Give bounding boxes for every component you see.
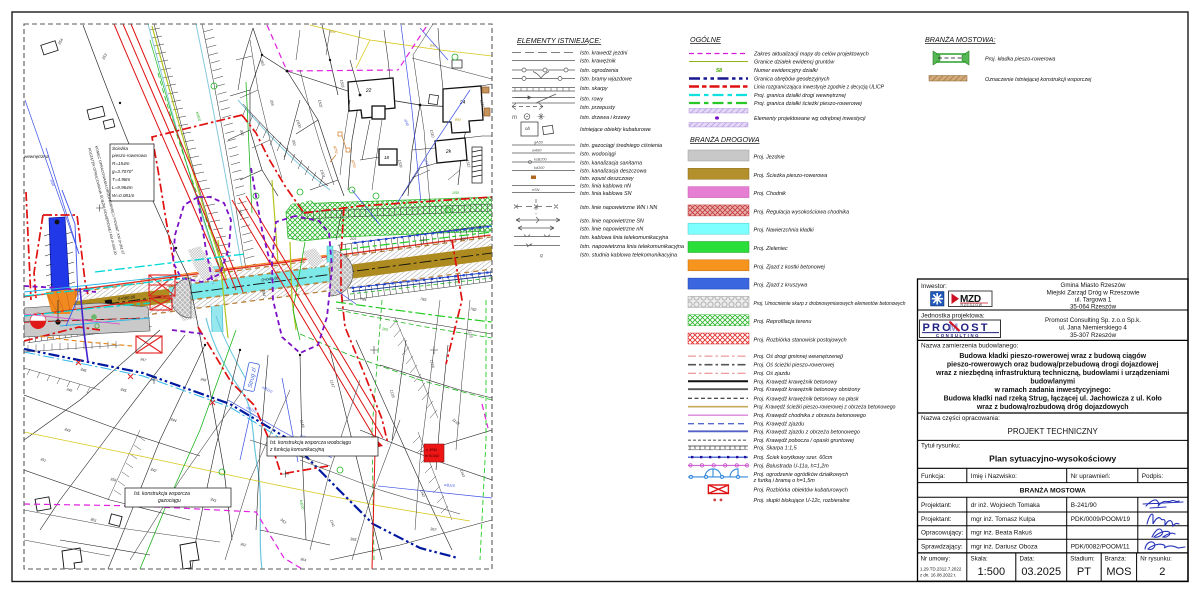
svg-text:PDK/0009/POOM/19: PDK/0009/POOM/19 [1071,516,1131,523]
svg-text:Imię i Nazwisko:: Imię i Nazwisko: [971,473,1017,480]
svg-text:Proj. granica działki ścieżki: Proj. granica działki ścieżki pieszo-row… [754,101,863,107]
svg-text:Sprawdzający:: Sprawdzający: [921,543,963,550]
svg-text:B-241/90: B-241/90 [1071,502,1097,509]
svg-text:Istn. drzewa i krzewy: Istn. drzewa i krzewy [580,115,630,121]
svg-text:Nr uprawnień:: Nr uprawnień: [1071,473,1111,480]
svg-text:Nazwa zamierzenia budowlanego:: Nazwa zamierzenia budowlanego: [921,343,1019,350]
svg-text:Istn. ogrodzenia: Istn. ogrodzenia [580,68,618,74]
svg-text:Jednostka projektowa:: Jednostka projektowa: [921,313,985,320]
svg-text:Istn. studnia kablowa telekomu: Istn. studnia kablowa telekomunikacyjna [580,253,677,259]
svg-text:Proj. Oś ścieżki pieszo-rowero: Proj. Oś ścieżki pieszo-rowerowej [754,363,835,369]
svg-text:ELEMENTY ISTNIEJĄCE:: ELEMENTY ISTNIEJĄCE: [517,36,601,45]
svg-text:g=3.7070°: g=3.7070° [112,169,133,174]
svg-text:Proj. Krawędź pobocza / opaski: Proj. Krawędź pobocza / opaski gruntowej [754,438,855,444]
svg-text:W=0.081m: W=0.081m [112,193,135,198]
svg-text:BRANŻA DROGOWA: BRANŻA DROGOWA [690,135,760,144]
svg-text:pieszo-rowerowych oraz budową/: pieszo-rowerowych oraz budową/przebudową… [947,362,1159,369]
svg-text:Proj. Umocnienie skarp z drobn: Proj. Umocnienie skarp z drobnowymiarowy… [754,301,906,307]
svg-text:Proj. Ściek korytkowy szer. 60: Proj. Ściek korytkowy szer. 60cm [754,454,833,461]
svg-text:Proj. Krawędź ścieżki pieszo-r: Proj. Krawędź ścieżki pieszo-rowerowej z… [754,405,896,411]
svg-text:Stadium:: Stadium: [1070,556,1095,563]
svg-text:03.2025: 03.2025 [1021,566,1061,578]
svg-text:gazociągu: gazociągu [158,498,181,504]
svg-text:Nr umowy:: Nr umowy: [921,556,951,563]
svg-text:OGÓLNE: OGÓLNE [690,35,721,44]
svg-text:nr B-042: nr B-042 [425,454,439,458]
svg-text:T=4.98m: T=4.98m [112,177,130,182]
svg-text:pieszo-rowerowa: pieszo-rowerowa [111,153,147,158]
svg-text:dr inż. Wojciech Tomaka: dr inż. Wojciech Tomaka [971,502,1040,509]
svg-text:Linia rozgraniczająca inwestyc: Linia rozgraniczająca inwestycje zgodnie… [754,85,884,91]
svg-text:BRANŻA MOSTOWA: BRANŻA MOSTOWA [1020,487,1086,495]
svg-text:Nazwa części opracowania:: Nazwa części opracowania: [921,415,1000,422]
svg-text:Budowa kładki nad rzeką Strug,: Budowa kładki nad rzeką Strug, łączącej … [944,396,1162,403]
svg-text:Proj. Ścieżka pieszo-rowerowa: Proj. Ścieżka pieszo-rowerowa [754,172,828,179]
svg-text:Proj. Chodnik: Proj. Chodnik [754,191,787,197]
svg-text:Istn. wodociągi: Istn. wodociągi [580,152,616,158]
svg-text:Projektant:: Projektant: [921,516,952,523]
svg-text:mgr inż. Dariusz Oboza: mgr inż. Dariusz Oboza [971,543,1038,550]
svg-text:Branża:: Branża: [1105,556,1127,563]
svg-text:Istn. linie napowietrzne WN i: Istn. linie napowietrzne WN i NN [580,205,657,211]
svg-text:Podpis:: Podpis: [1142,473,1164,480]
svg-text:Granice działek ewidencj grunt: Granice działek ewidencj gruntów [754,60,835,66]
svg-text:Istniejące obiekty kubaturowe: Istniejące obiekty kubaturowe [580,127,651,133]
svg-text:Zakres aktualizacji mapy do ce: Zakres aktualizacji mapy do celów projek… [753,52,869,58]
svg-text:Proj. Krawędź chodnika z obrze: Proj. Krawędź chodnika z obrzeża betonow… [754,413,866,419]
svg-text:Proj. Zjazd z kruszywa: Proj. Zjazd z kruszywa [754,283,808,289]
svg-text:Proj. Regulacja wysokościowa c: Proj. Regulacja wysokościowa chodnika [754,209,850,215]
svg-text:2k: 2k [445,149,452,155]
svg-text:q: q [540,253,543,259]
svg-text:mgr inż. Beata Rakuś: mgr inż. Beata Rakuś [971,530,1032,537]
svg-text:Proj. słupki blokujące U-12c,: Proj. słupki blokujące U-12c, rozbieraln… [754,498,850,504]
svg-text:w ramach zadania inwestycyjneg: w ramach zadania inwestycyjnego: [994,387,1111,394]
svg-text:18: 18 [384,155,390,160]
svg-text:Istn. wpust deszczowy: Istn. wpust deszczowy [580,176,634,182]
svg-text:Plan sytuacyjno-wysokościowy: Plan sytuacyjno-wysokościowy [989,454,1116,464]
svg-text:ul. Jana Niemierskiego 4: ul. Jana Niemierskiego 4 [1059,325,1127,332]
svg-text:gaz: gaz [430,43,436,48]
svg-text:PROJEKT TECHNICZNY: PROJEKT TECHNICZNY [1008,427,1099,436]
svg-text:Proj. Skarpa 1:1,5: Proj. Skarpa 1:1,5 [754,446,798,452]
svg-text:budowlanymi: budowlanymi [1030,379,1075,386]
svg-text:Proj. Rozbiórka stanowisk post: Proj. Rozbiórka stanowisk postojowych [754,338,847,344]
svg-text:1/50: 1/50 [452,191,459,195]
svg-text:Proj. Zjazd z kostki betonowej: Proj. Zjazd z kostki betonowej [754,264,826,270]
svg-text:Proj. Balustrada U-11a, h=1,2m: Proj. Balustrada U-11a, h=1,2m [754,463,830,469]
svg-text:Funkcja:: Funkcja: [921,473,945,480]
svg-text:Proj. granica działki drogi we: Proj. granica działki drogi wewnętrznej [754,93,846,99]
svg-text:Promost Consulting Sp. z.o.o S: Promost Consulting Sp. z.o.o Sp.k. [1045,317,1141,324]
svg-text:Proj. Krawędź krawężnik betono: Proj. Krawędź krawężnik betonowy na płas… [754,396,859,402]
svg-text:35-307 Rzeszów: 35-307 Rzeszów [1070,332,1117,339]
svg-text:Inwestor:: Inwestor: [921,283,947,290]
svg-text:Proj. Zieleniec: Proj. Zieleniec [754,246,788,252]
svg-text:Proj. Krawędź krawężnik betono: Proj. Krawędź krawężnik betonowy [754,379,838,385]
svg-text:Elementy projektowane wg odręb: Elementy projektowane wg odrębnej inwest… [754,116,866,122]
svg-text:Ist. konstrukcja wsporcza: Ist. konstrukcja wsporcza [134,491,190,497]
svg-text:ul. Targowa 1: ul. Targowa 1 [1075,297,1112,304]
svg-text:35-064 Rzeszów: 35-064 Rzeszów [1070,304,1117,311]
svg-text:z dn. 16.08.2022 r.: z dn. 16.08.2022 r. [920,573,956,578]
svg-text:mgr inż. Tomasz Kulpa: mgr inż. Tomasz Kulpa [971,516,1036,523]
svg-text:Istn. kablowa linia telekomuni: Istn. kablowa linia telekomunikacyjna [580,235,668,241]
svg-text:eSN: eSN [532,188,540,192]
svg-text:ksB200: ksB200 [534,158,548,162]
svg-text:Proj. Nawierzchnia kładki: Proj. Nawierzchnia kładki [754,228,815,234]
svg-text:Istn. napowietrzna linia telek: Istn. napowietrzna linia telekomunikacyj… [580,244,684,250]
svg-text:1.29.TD.2312.7.2022: 1.29.TD.2312.7.2022 [920,567,962,572]
svg-text:R=154m: R=154m [112,161,130,166]
svg-text:MOS: MOS [1106,566,1131,578]
svg-text:Skala:: Skala: [971,556,988,563]
svg-text:z funkcją komunikacyjną: z funkcją komunikacyjną [269,447,324,453]
svg-text:Istn. linie napowietrzne nN: Istn. linie napowietrzne nN [580,227,643,233]
svg-text:wraz z budową/rozbudową dróg d: wraz z budową/rozbudową dróg dojazdowych [976,404,1129,411]
svg-text:Istn. linie napowietrzne SN: Istn. linie napowietrzne SN [580,219,644,225]
svg-text:Numer ewidencyjny działki: Numer ewidencyjny działki [754,68,818,74]
svg-text:Gmina Miasto Rzeszów: Gmina Miasto Rzeszów [1061,282,1127,289]
svg-text:Istn. rowy: Istn. rowy [580,97,603,103]
svg-text:22: 22 [365,88,372,94]
svg-text:Oznaczenie Istniejącej konstru: Oznaczenie Istniejącej konstrukcji wspor… [985,77,1092,83]
svg-text:wewnętrzna: wewnętrzna [24,154,49,159]
svg-text:Ścieżka: Ścieżka [112,145,129,151]
svg-text:z JSN: z JSN [426,447,437,452]
svg-text:gA50: gA50 [534,141,544,145]
svg-text:Granica obrębów geodezyjnych: Granica obrębów geodezyjnych [754,77,830,83]
svg-text:Istn. kanalizacja deszczowa: Istn. kanalizacja deszczowa [580,169,647,175]
svg-text:Tytuł rysunku:: Tytuł rysunku: [921,443,961,450]
svg-text:Proj. Reprofilacja terenu: Proj. Reprofilacja terenu [754,319,812,325]
svg-text:wraz z niezbędną infrastruktur: wraz z niezbędną infrastrukturą technicz… [935,370,1169,377]
svg-text:PT: PT [1077,566,1091,578]
svg-text:Budowa kładki pieszo-rowerowej: Budowa kładki pieszo-rowerowej wraz z bu… [959,353,1146,360]
svg-text:Proj. Jezdnie: Proj. Jezdnie [754,155,785,161]
svg-text:Miejski Zarząd Dróg w Rzeszowi: Miejski Zarząd Dróg w Rzeszowie [1047,289,1140,296]
svg-text:Opracowujący:: Opracowujący: [921,530,963,537]
svg-text:z furtką i bramą o h=1,5m: z furtką i bramą o h=1,5m [753,478,816,484]
svg-text:RZESZÓW: RZESZÓW [961,302,983,307]
svg-text:ob: ob [525,126,531,131]
svg-text:Data:: Data: [1020,556,1035,563]
svg-text:Istn. linia kablowa SN: Istn. linia kablowa SN [580,191,632,197]
svg-text:Istn. bramy wjazdowe: Istn. bramy wjazdowe [580,77,632,83]
svg-text:Istn. gazociągi średniego ciśn: Istn. gazociągi średniego ciśnienia [580,143,662,149]
svg-text:Istn. krawężnik: Istn. krawężnik [580,59,616,65]
svg-text:Proj. Krawędź krawężnik betono: Proj. Krawędź krawężnik betonowy obniżon… [754,387,861,393]
svg-text:L=9.964m: L=9.964m [112,185,133,190]
svg-text:2: 2 [1159,566,1165,578]
svg-text:Proj. Krawędź zjazdu z obrzeża: Proj. Krawędź zjazdu z obrzeża betonoweg… [754,429,860,435]
svg-text:Istn. przepusty: Istn. przepusty [580,105,615,111]
svg-text:Projektant:: Projektant: [921,502,952,509]
svg-text:1:500: 1:500 [978,566,1006,578]
svg-text:Istn. krawedź jezdni: Istn. krawedź jezdni [580,51,628,57]
svg-text:kd300: kd300 [534,166,545,170]
svg-text:Proj. kładka pieszo-rowerowa: Proj. kładka pieszo-rowerowa [985,57,1055,63]
svg-text:wA80: wA80 [532,149,542,153]
svg-text:Istn. linia kablowa nN: Istn. linia kablowa nN [580,184,631,190]
svg-text:203: 203 [349,237,357,241]
svg-text:Proj. Oś zjazdu: Proj. Oś zjazdu [754,371,791,377]
svg-text:205: 205 [459,237,467,241]
svg-text:Proj. Rozbiórka obiektów kubat: Proj. Rozbiórka obiektów kubaturowych [754,488,848,494]
svg-text:58: 58 [716,68,723,74]
svg-text:Istn. kanalizacja sanitarna: Istn. kanalizacja sanitarna [580,161,642,167]
svg-text:Proj. Oś drogi gminnej wewnętr: Proj. Oś drogi gminnej wewnętrzenej) [754,354,844,360]
svg-text:Istn. skarpy: Istn. skarpy [580,86,608,92]
svg-text:PDK/0082/POOM/11: PDK/0082/POOM/11 [1071,543,1130,550]
svg-text:Ist. konstrukcja wsporcza wod: Ist. konstrukcja wsporcza wodociągu [270,440,351,446]
svg-text:BRANŻA MOSTOWA:: BRANŻA MOSTOWA: [925,35,996,44]
svg-text:Nr rysunku:: Nr rysunku: [1140,556,1172,563]
svg-text:CONSULTING: CONSULTING [936,333,980,338]
svg-text:m: m [512,115,517,121]
svg-text:Proj. Krawędź zjazdu: Proj. Krawędź zjazdu [754,422,805,428]
svg-text:gaz: gaz [455,117,461,122]
